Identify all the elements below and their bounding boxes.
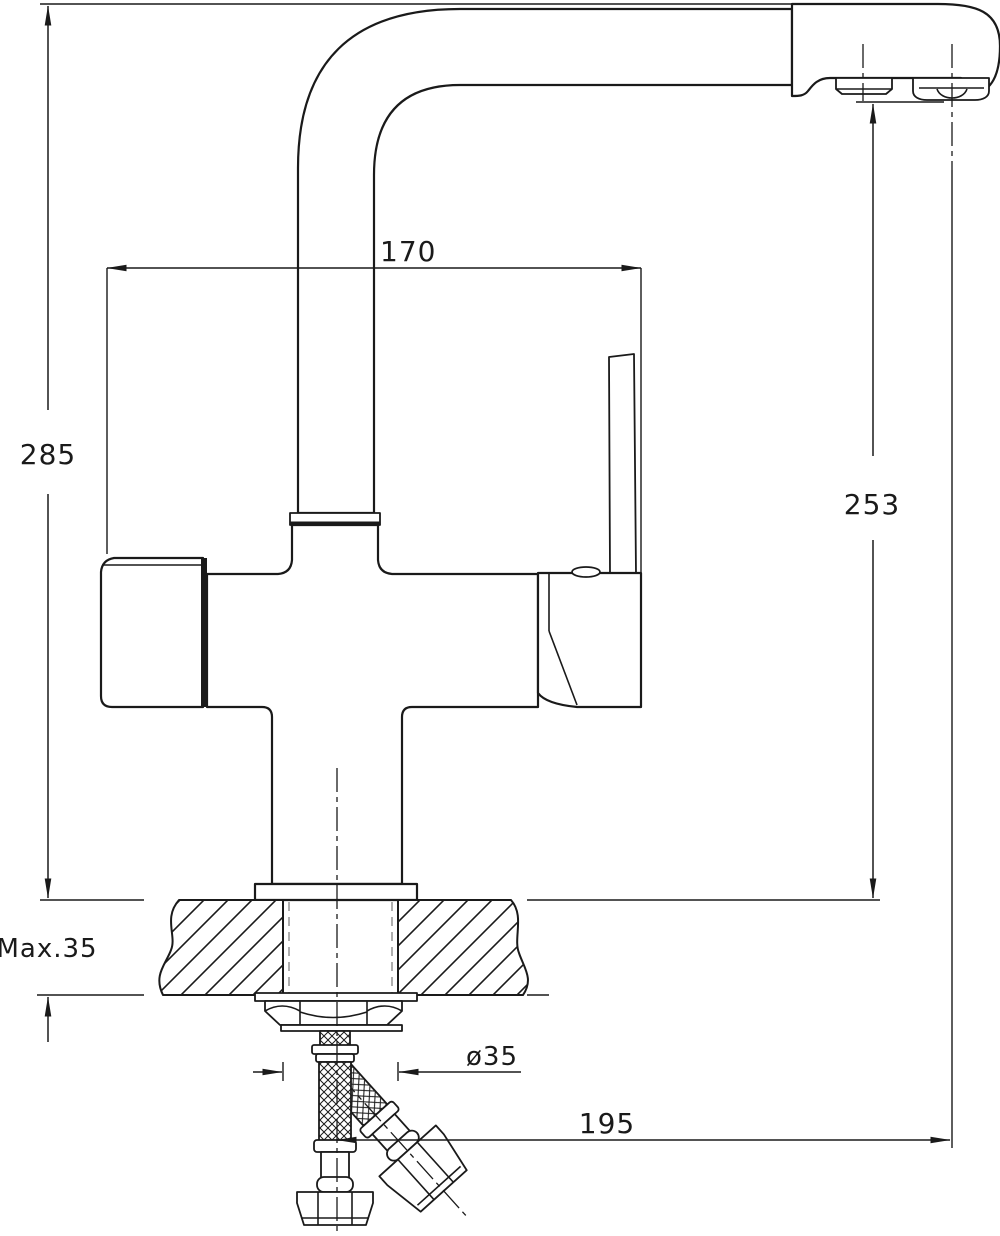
filter-handle-edge (201, 558, 207, 707)
mounting-washer (255, 993, 417, 1001)
hose-nut-vertical (297, 1192, 373, 1225)
hose-braid-vertical (319, 1062, 351, 1141)
dim-label-195: 195 (579, 1107, 635, 1140)
hose-fitting-bar-2 (316, 1054, 354, 1062)
filter-handle (101, 558, 203, 707)
dim-label-170: 170 (380, 235, 436, 268)
dim-label-253: 253 (844, 488, 900, 521)
base-flange (255, 884, 417, 900)
dim-label-dia35: ø35 (466, 1042, 518, 1072)
countertop-section-left (159, 900, 283, 995)
lever-base (538, 573, 641, 707)
hose-bead-vertical (317, 1177, 353, 1192)
hose-tube-vertical (321, 1152, 349, 1178)
lever-rod (609, 354, 636, 574)
hose-collar-vertical (314, 1140, 356, 1152)
outlet-cup-right (913, 78, 989, 100)
dim-label-max35: Max.35 (0, 934, 98, 964)
lock-nut (265, 1001, 402, 1025)
hose-braid-stub (320, 1031, 350, 1046)
lever-hinge-dome (572, 567, 600, 577)
faucet-technical-drawing: 170 285 253 Max.35 ø35 195 (0, 0, 1000, 1236)
outlet-cup-left (836, 78, 892, 94)
countertop-section-right (398, 900, 528, 995)
hose-fitting-bar-1 (312, 1045, 358, 1054)
dim-label-285: 285 (20, 438, 76, 471)
faucet-spout-and-riser (298, 9, 792, 513)
mixer-body (207, 525, 538, 884)
drawing-canvas: 170 285 253 Max.35 ø35 195 (0, 0, 1000, 1236)
